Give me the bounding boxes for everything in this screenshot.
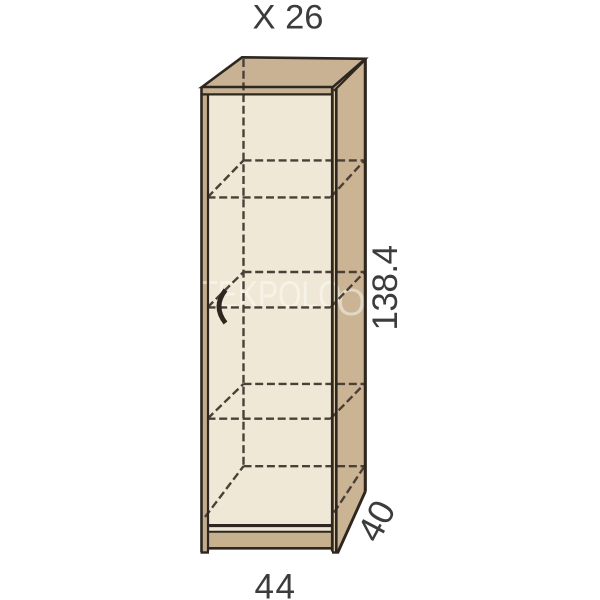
svg-text:O: O xyxy=(337,282,367,324)
svg-text:138.4: 138.4 xyxy=(366,245,405,330)
svg-text:X 26: X 26 xyxy=(253,0,324,37)
svg-text:44: 44 xyxy=(255,568,297,600)
